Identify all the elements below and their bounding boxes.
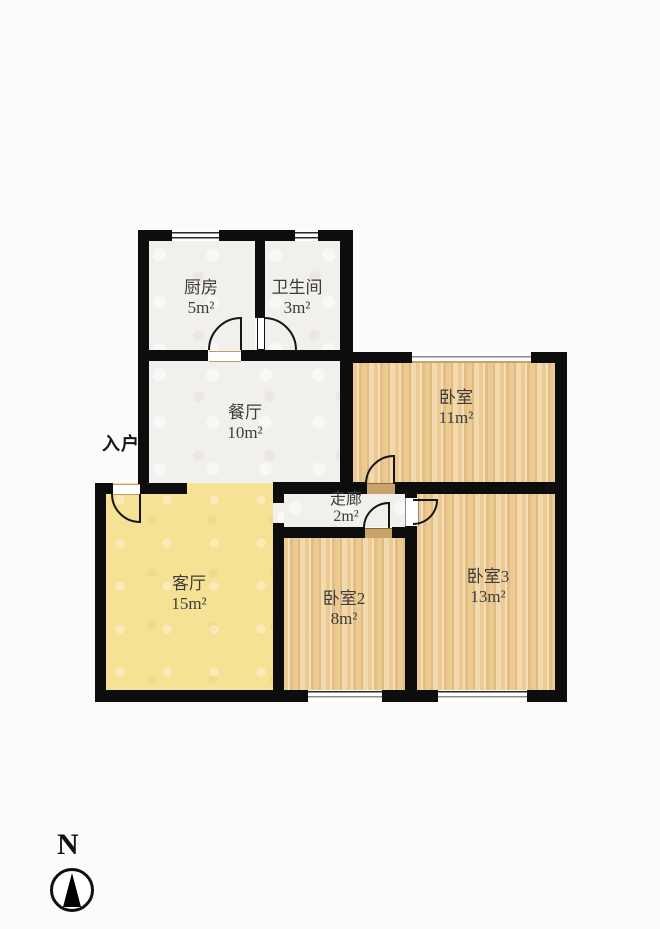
entrance-door-arc bbox=[112, 494, 140, 522]
bedroom2-door-arc bbox=[364, 503, 389, 528]
door-symbols bbox=[0, 0, 660, 929]
room-name: 卧室3 bbox=[467, 567, 510, 586]
room-label-bathroom: 卫生间 3m² bbox=[272, 278, 323, 318]
room-label-bedroom1: 卧室 11m² bbox=[439, 388, 474, 428]
bedroom1-door-arc bbox=[366, 456, 394, 484]
room-name: 卧室2 bbox=[323, 589, 366, 608]
bathroom-door-arc bbox=[264, 318, 296, 350]
room-area: 2m² bbox=[330, 508, 362, 525]
room-name: 餐厅 bbox=[228, 403, 262, 422]
room-name: 客厅 bbox=[172, 574, 206, 593]
bedroom3-door-arc bbox=[413, 500, 437, 524]
room-name: 走廊 bbox=[330, 491, 362, 508]
kitchen-door-arc bbox=[209, 318, 241, 350]
room-label-bedroom2: 卧室2 8m² bbox=[323, 589, 366, 629]
room-area: 13m² bbox=[467, 587, 510, 607]
room-label-dining: 餐厅 10m² bbox=[227, 403, 262, 443]
room-area: 8m² bbox=[323, 609, 366, 629]
room-area: 10m² bbox=[227, 423, 262, 443]
room-label-bedroom3: 卧室3 13m² bbox=[467, 567, 510, 607]
room-area: 11m² bbox=[439, 408, 474, 428]
room-area: 15m² bbox=[171, 594, 206, 614]
room-name: 厨房 bbox=[184, 278, 218, 297]
room-area: 5m² bbox=[184, 298, 218, 318]
room-name: 卫生间 bbox=[272, 278, 323, 297]
room-label-corridor: 走廊 2m² bbox=[330, 491, 362, 525]
room-area: 3m² bbox=[272, 298, 323, 318]
floor-plan: 入户 厨房 5m² bbox=[0, 0, 660, 929]
room-label-kitchen: 厨房 5m² bbox=[184, 278, 218, 318]
room-label-living: 客厅 15m² bbox=[171, 574, 206, 614]
room-name: 卧室 bbox=[439, 388, 473, 407]
